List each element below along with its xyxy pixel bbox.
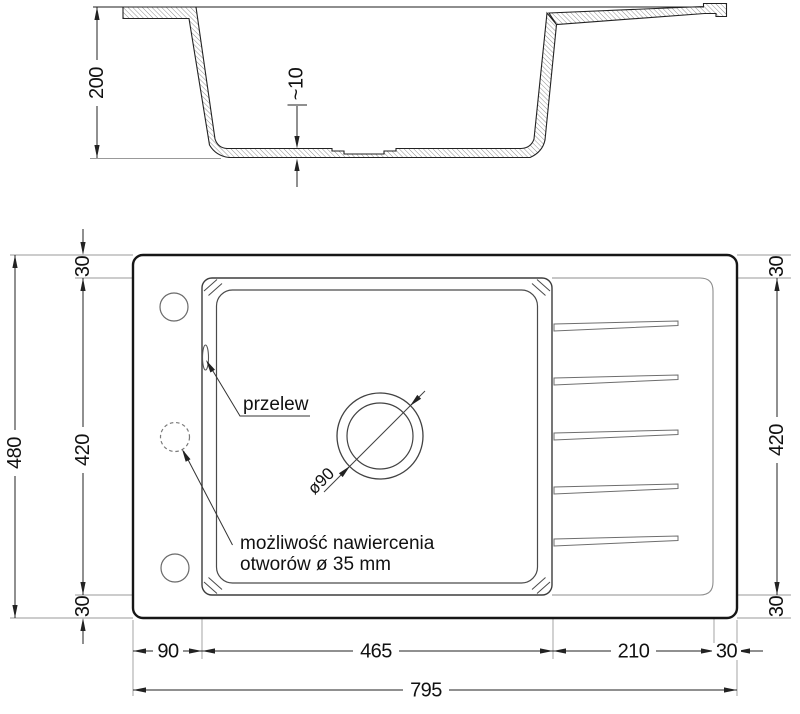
arrowhead-down (12, 605, 17, 618)
dimension-depth-200: 200 (86, 7, 108, 158)
tap-hole-bottom (161, 554, 189, 582)
overflow-slot (203, 345, 209, 370)
tap-hole-top (160, 293, 188, 321)
arrowhead-left (202, 648, 215, 653)
arrowhead-up (294, 159, 299, 172)
dimension-inner-height-420-left: 420 (72, 278, 94, 595)
arrowhead-up (80, 618, 85, 631)
sink-technical-drawing: 200 ~10 (0, 0, 800, 714)
dim-basin-label: 465 (360, 641, 392, 663)
dim-top-margin-right-label: 30 (766, 256, 788, 278)
dimension-top-margin-30-right: 30 (766, 256, 788, 278)
dim-deck-label: 90 (157, 641, 179, 663)
dimension-total-height-480: 480 (4, 255, 26, 618)
dimension-top-margin-30-left: 30 (72, 229, 94, 277)
dim-thickness-label: ~10 (286, 67, 308, 100)
drill-note-line2: otworów ø 35 mm (240, 554, 391, 575)
arrowhead-up (94, 7, 99, 20)
section-basin-cut (123, 7, 557, 158)
dim-total-width-label: 795 (410, 680, 442, 702)
arrowhead-right (724, 687, 737, 692)
dimension-bottom-margin-30-right: 30 (766, 596, 788, 618)
arrowhead-left (133, 687, 146, 692)
arrowhead-down (80, 582, 85, 595)
arrowhead-up (774, 278, 779, 291)
dim-inner-height-right-label: 420 (766, 424, 788, 456)
dim-inner-height-left-label: 420 (72, 434, 94, 466)
dim-bottom-margin-left-label: 30 (72, 596, 94, 618)
arrowhead-right (189, 648, 202, 653)
arrowhead-down (774, 582, 779, 595)
dim-drainer-label: 210 (618, 641, 650, 663)
dim-margin-label: 30 (716, 641, 738, 663)
dimension-inner-height-420-right: 420 (766, 278, 788, 595)
arrowhead-up (12, 255, 17, 268)
arrowhead-up (80, 278, 85, 291)
arrowhead-down (80, 242, 85, 255)
plan-view: ø90 przelew możliwość nawiercenia otworó… (4, 229, 791, 702)
arrowhead-left (133, 648, 146, 653)
section-view: 200 ~10 (86, 4, 727, 188)
arrowhead-left (553, 648, 566, 653)
drill-note-line1: możliwość nawiercenia (240, 533, 435, 554)
dim-top-margin-left-label: 30 (72, 256, 94, 278)
arrowhead-right (540, 648, 553, 653)
overflow-label: przelew (243, 394, 309, 415)
dimension-margin-30-row: 30 (712, 641, 750, 663)
dim-depth-label: 200 (86, 67, 108, 99)
dimension-bottom-thickness: ~10 (286, 62, 308, 187)
arrowhead-down (294, 136, 299, 149)
dim-total-height-label: 480 (4, 437, 26, 469)
dim-bottom-margin-right-label: 30 (766, 596, 788, 618)
dimension-deck-90: 90 (133, 641, 202, 663)
dimension-bottom-margin-30-left: 30 (72, 596, 94, 644)
arrowhead-down (94, 145, 99, 158)
